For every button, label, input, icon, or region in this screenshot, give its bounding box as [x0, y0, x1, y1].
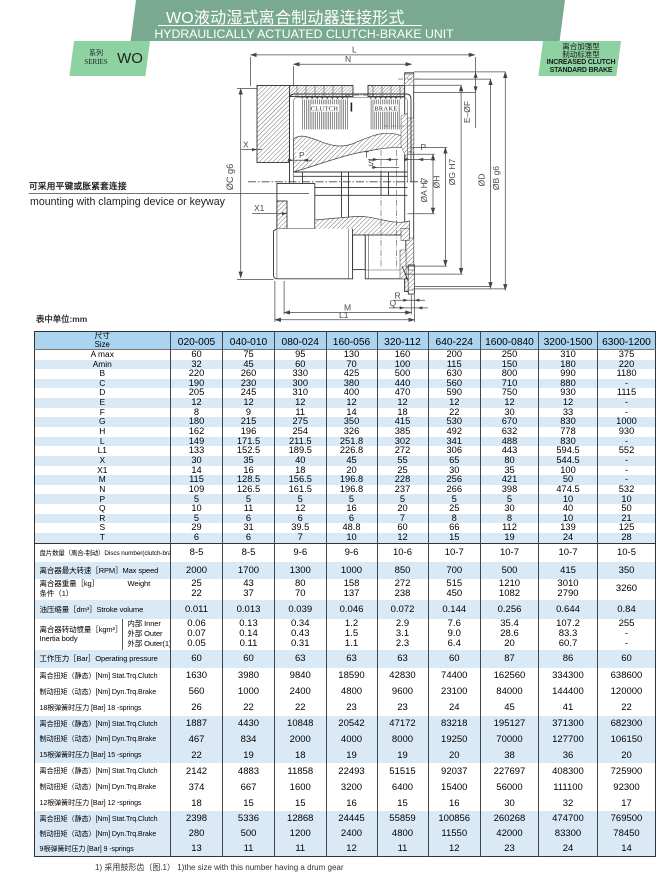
svg-text:ØD: ØD [477, 174, 487, 187]
svg-text:E–ØF: E–ØF [462, 101, 472, 123]
svg-text:X: X [243, 140, 249, 150]
svg-text:ØG H7: ØG H7 [447, 159, 457, 186]
svg-text:ØH: ØH [432, 176, 442, 189]
svg-text:ØC g6: ØC g6 [225, 164, 235, 191]
svg-text:L1: L1 [339, 310, 349, 320]
svg-text:P: P [421, 142, 427, 152]
svg-text:Q: Q [390, 298, 397, 308]
svg-text:P: P [299, 150, 305, 160]
svg-text:ØA H7: ØA H7 [419, 177, 429, 202]
svg-text:ØB g6: ØB g6 [491, 166, 501, 190]
svg-text:BRAKE: BRAKE [374, 105, 397, 112]
svg-text:N: N [345, 54, 351, 64]
svg-text:CLUTCH: CLUTCH [311, 105, 339, 112]
svg-text:X1: X1 [254, 203, 265, 213]
svg-text:L: L [352, 45, 357, 55]
